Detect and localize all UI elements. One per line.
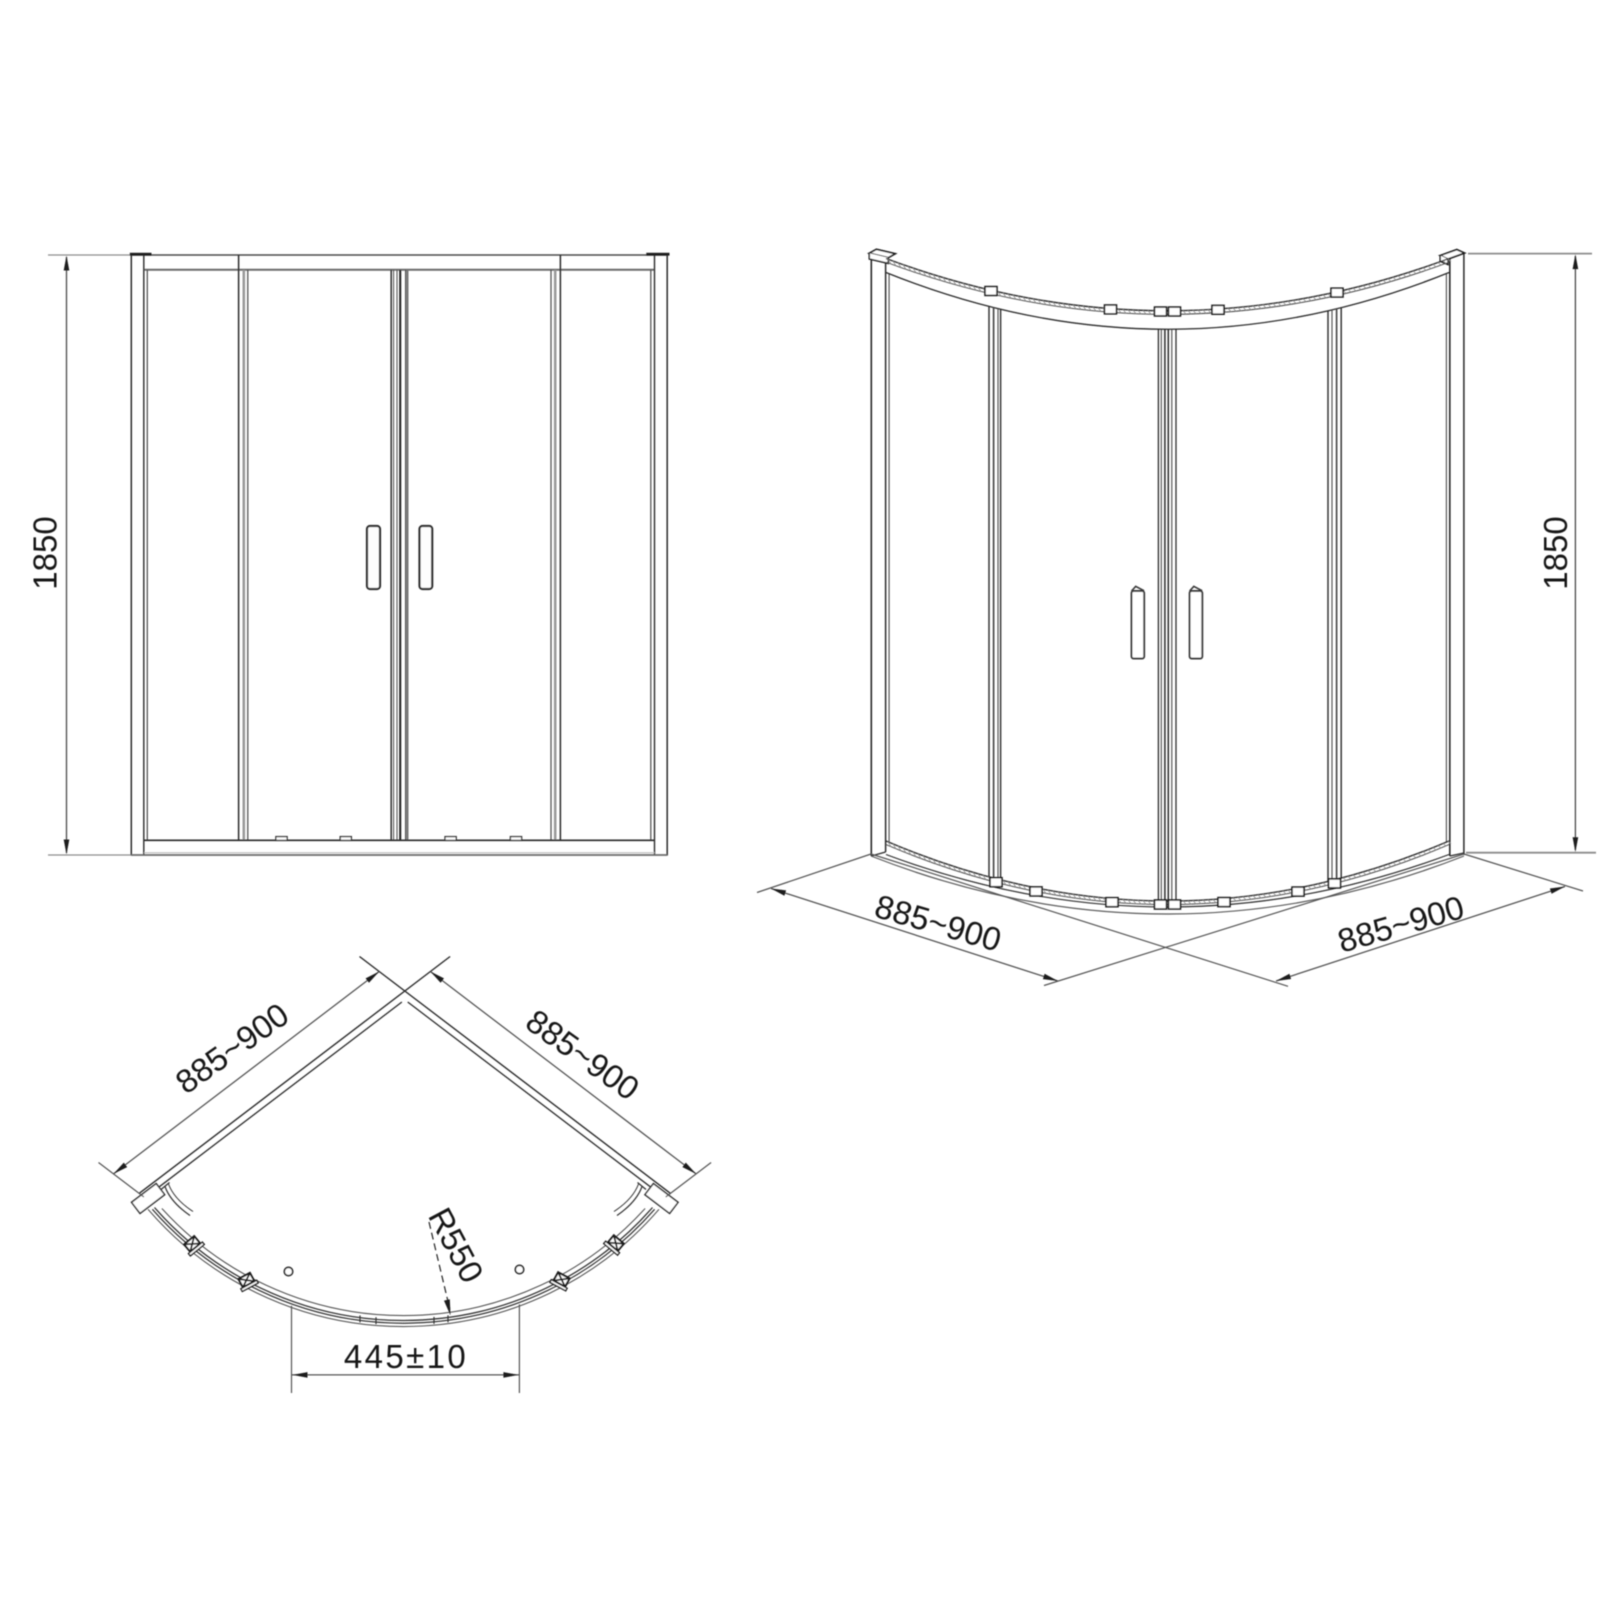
svg-text:1850: 1850 <box>1537 516 1574 589</box>
svg-text:445±10: 445±10 <box>344 1338 468 1375</box>
svg-text:1850: 1850 <box>27 516 64 589</box>
